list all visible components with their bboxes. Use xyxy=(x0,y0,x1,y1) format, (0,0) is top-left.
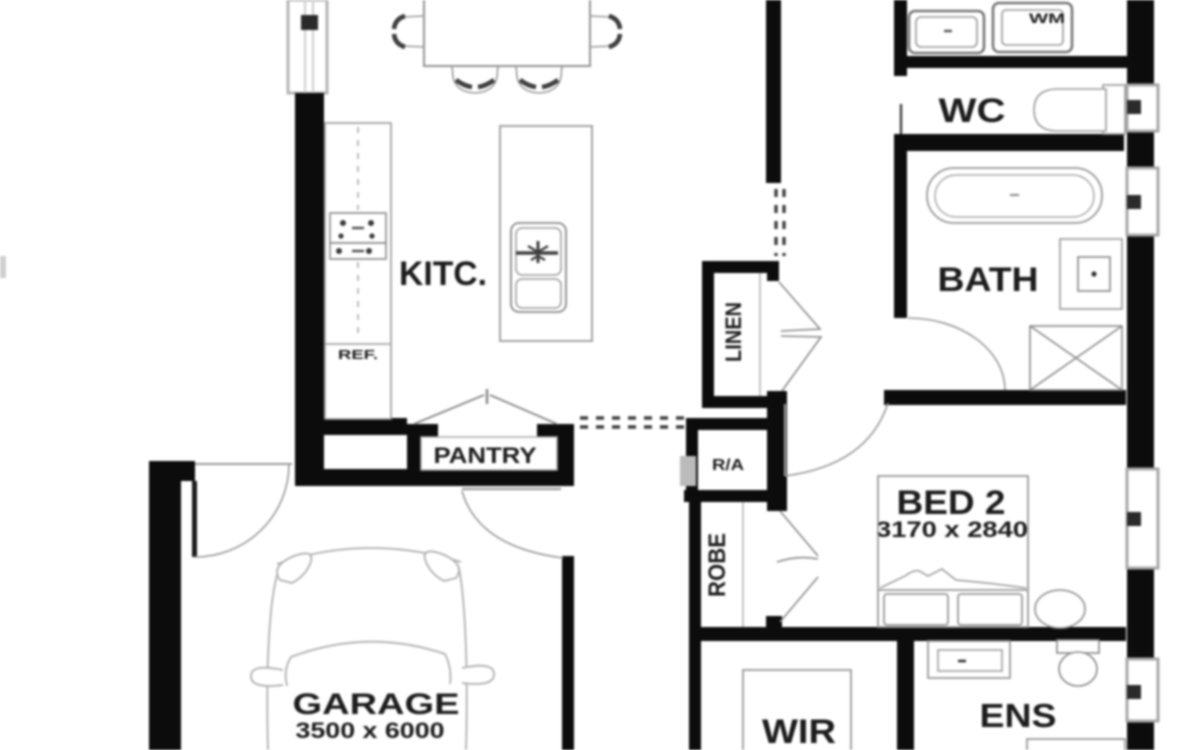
svg-text:BATH: BATH xyxy=(938,261,1039,299)
svg-text:GARAGE: GARAGE xyxy=(293,688,460,721)
svg-text:REF.: REF. xyxy=(338,347,378,362)
svg-text:R/A: R/A xyxy=(712,457,745,474)
svg-text:ENS: ENS xyxy=(980,697,1057,734)
svg-text:ROBE: ROBE xyxy=(704,533,731,597)
svg-text:PANTRY: PANTRY xyxy=(434,443,537,468)
svg-text:WIR: WIR xyxy=(762,713,836,750)
svg-text:WC: WC xyxy=(939,92,1006,130)
svg-text:3500 x 6000: 3500 x 6000 xyxy=(296,718,445,743)
svg-text:KITC.: KITC. xyxy=(399,255,487,293)
svg-text:WM: WM xyxy=(1029,10,1065,26)
svg-text:3170 x 2840: 3170 x 2840 xyxy=(876,517,1028,542)
svg-text:LINEN: LINEN xyxy=(721,302,746,362)
